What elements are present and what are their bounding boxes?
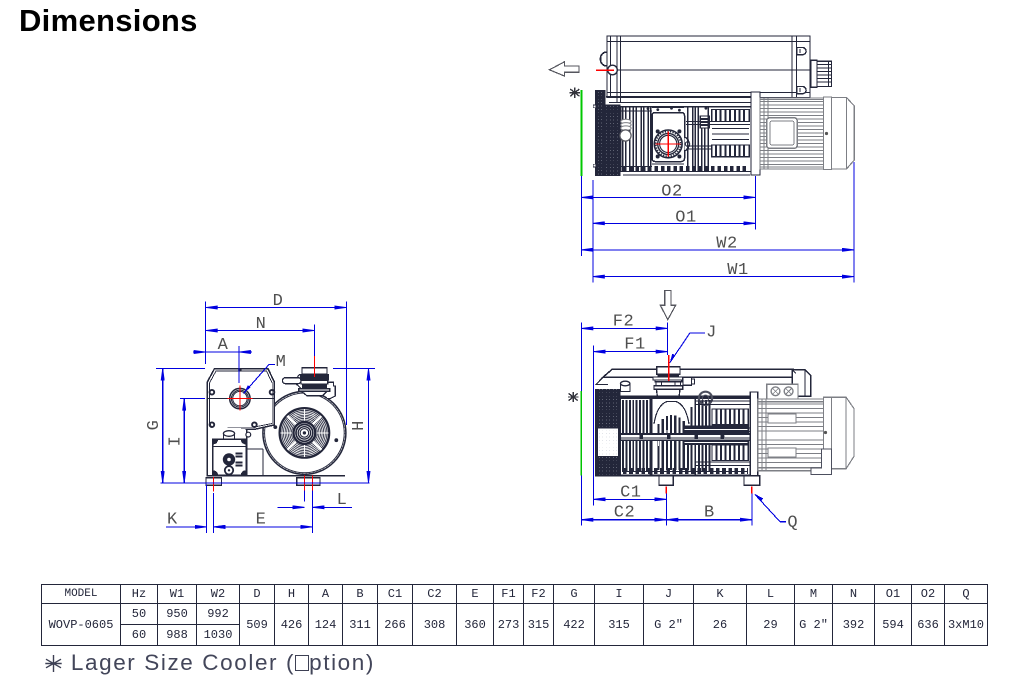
svg-text:D: D <box>273 292 284 311</box>
svg-text:J: J <box>706 324 717 343</box>
svg-text:K: K <box>167 511 178 530</box>
svg-text:W1: W1 <box>727 261 748 280</box>
svg-text:O1: O1 <box>675 208 696 227</box>
svg-text:G: G <box>145 420 164 431</box>
svg-text:A: A <box>218 336 229 355</box>
svg-text:N: N <box>256 315 267 334</box>
svg-text:E: E <box>256 511 267 530</box>
svg-text:O2: O2 <box>661 182 682 201</box>
svg-text:M: M <box>276 353 287 372</box>
svg-text:I: I <box>167 436 186 447</box>
svg-text:Q: Q <box>787 514 798 533</box>
svg-text:H: H <box>350 420 369 431</box>
svg-text:W2: W2 <box>716 234 737 253</box>
svg-text:C2: C2 <box>614 504 635 523</box>
svg-text:C1: C1 <box>620 483 641 502</box>
svg-text:B: B <box>704 504 715 523</box>
svg-text:F2: F2 <box>613 312 634 331</box>
svg-text:L: L <box>337 491 348 510</box>
svg-text:F1: F1 <box>624 336 645 355</box>
